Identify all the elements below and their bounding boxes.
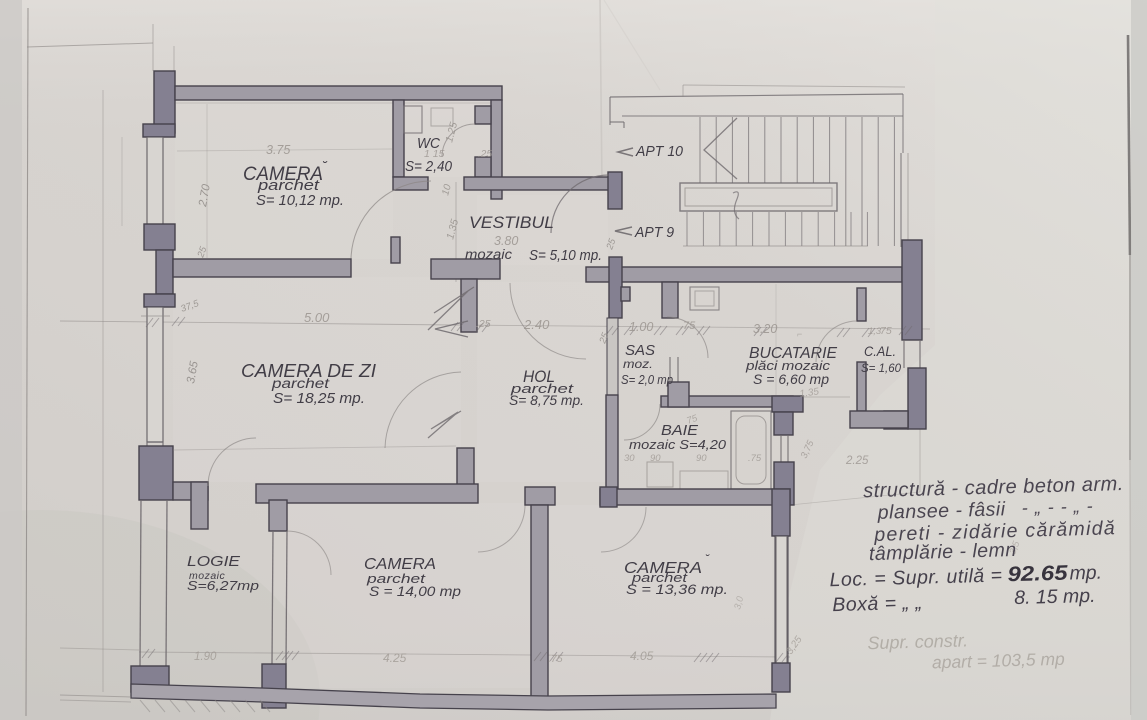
- svg-text:92.65: 92.65: [1007, 562, 1068, 587]
- svg-text:⌐: ⌐: [797, 329, 802, 339]
- svg-text:S= 8,75 mp.: S= 8,75 mp.: [509, 392, 584, 408]
- svg-text:- „ - - „ -: - „ - - „ -: [1021, 496, 1094, 518]
- svg-text:CAMERA: CAMERA: [364, 556, 436, 573]
- svg-text:SAS: SAS: [625, 343, 655, 359]
- svg-text:90: 90: [696, 453, 707, 464]
- svg-text:S= 1,60: S= 1,60: [861, 361, 901, 375]
- svg-text:3.20: 3.20: [753, 322, 777, 336]
- svg-text:S = 13,36 mp.: S = 13,36 mp.: [626, 582, 728, 597]
- svg-text:S= 2,40: S= 2,40: [405, 159, 452, 175]
- svg-text:S= 2,0 mp: S= 2,0 mp: [621, 373, 673, 387]
- svg-text:VESTIBUL: VESTIBUL: [469, 213, 554, 232]
- svg-text:mozaic S=4,20: mozaic S=4,20: [629, 438, 726, 452]
- svg-text:apart = 103,5 mp: apart = 103,5 mp: [932, 649, 1066, 673]
- svg-text:4.25: 4.25: [383, 651, 407, 665]
- svg-text:S= 10,12 mp.: S= 10,12 mp.: [256, 193, 344, 209]
- svg-text:mozaic: mozaic: [465, 247, 512, 262]
- svg-text:C.AL.: C.AL.: [864, 344, 896, 359]
- svg-text:8. 15 mp.: 8. 15 mp.: [1014, 585, 1096, 609]
- svg-text:30: 30: [624, 453, 635, 464]
- svg-text:LOGIE: LOGIE: [187, 553, 241, 570]
- svg-text:3.80: 3.80: [494, 234, 518, 248]
- svg-text:parchet: parchet: [257, 177, 320, 194]
- svg-text:.25: .25: [476, 318, 491, 330]
- svg-text:3.75: 3.75: [266, 143, 290, 157]
- svg-text:1.00: 1.00: [629, 320, 653, 334]
- svg-text:parchet: parchet: [271, 376, 331, 391]
- svg-text:S=6,27mp: S=6,27mp: [187, 579, 259, 593]
- svg-text:.75: .75: [748, 453, 762, 464]
- svg-text:APT 10: APT 10: [635, 144, 683, 160]
- svg-text:Boxă = „ „: Boxă = „ „: [832, 592, 923, 617]
- svg-text:S= 18,25 mp.: S= 18,25 mp.: [273, 391, 365, 407]
- svg-text:.75: .75: [548, 653, 563, 665]
- svg-text:S = 6,60 mp: S = 6,60 mp: [753, 371, 829, 387]
- svg-text:75: 75: [880, 325, 892, 337]
- svg-text:2.25: 2.25: [845, 455, 869, 467]
- svg-text:tâmplărie - lemn: tâmplărie - lemn: [869, 539, 1017, 565]
- svg-text:4.05: 4.05: [630, 649, 654, 663]
- svg-text:APT 9: APT 9: [634, 225, 674, 241]
- svg-text:S = 14,00 mp: S = 14,00 mp: [369, 584, 462, 599]
- svg-text:.75: .75: [680, 320, 696, 332]
- svg-text:.25: .25: [478, 149, 492, 160]
- svg-text:2.40: 2.40: [523, 317, 550, 332]
- svg-text:90: 90: [650, 453, 661, 464]
- svg-text:5.00: 5.00: [304, 310, 330, 325]
- svg-text:mp.: mp.: [1069, 562, 1102, 585]
- svg-text:1.90: 1.90: [194, 651, 217, 663]
- svg-text:S= 5,10 mp.: S= 5,10 mp.: [529, 248, 602, 264]
- svg-text:moz.: moz.: [623, 359, 653, 371]
- svg-text:Supr. constr.: Supr. constr.: [867, 630, 968, 653]
